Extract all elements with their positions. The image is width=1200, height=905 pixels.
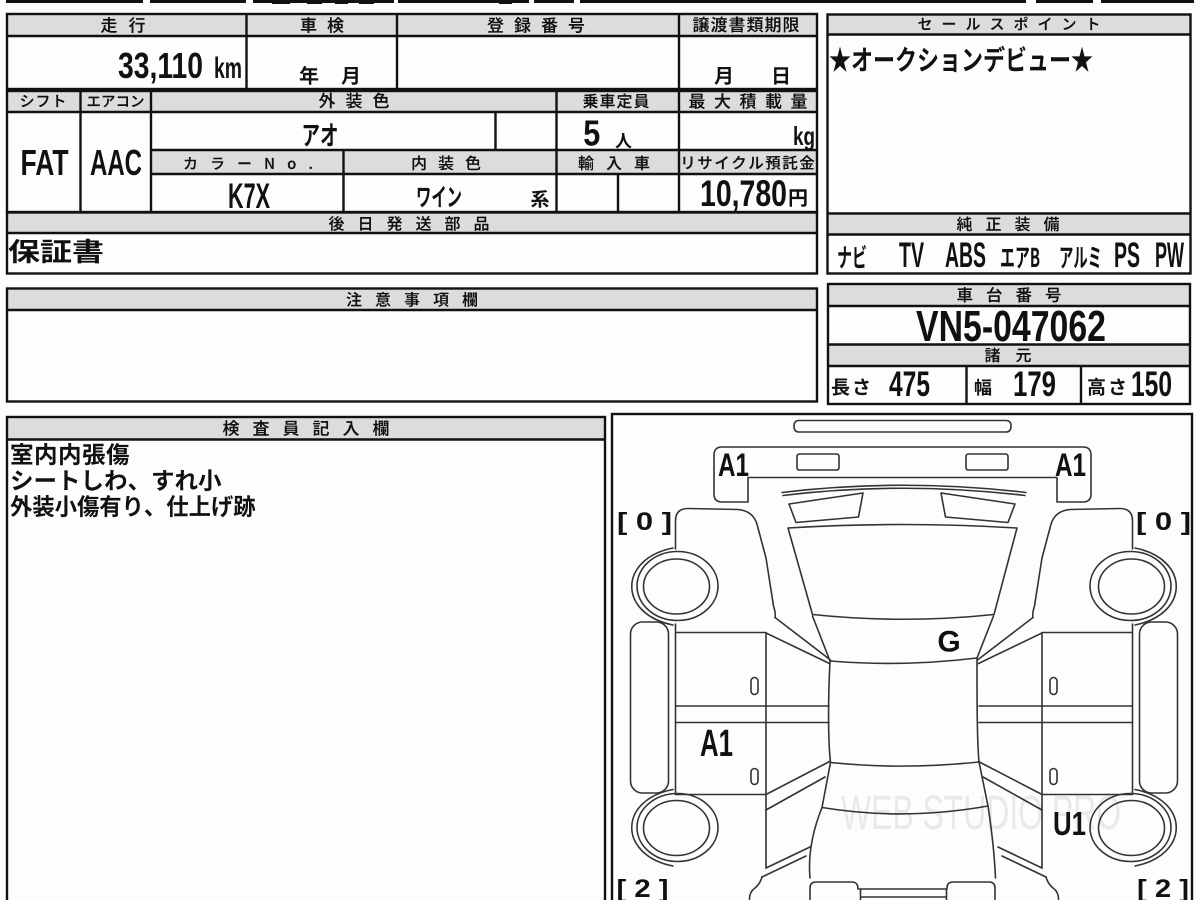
svg-text:kg: kg [793, 121, 815, 151]
svg-text:[ 2 ]: [ 2 ] [617, 875, 669, 900]
svg-text:km: km [214, 52, 242, 85]
svg-text:FAT: FAT [21, 142, 69, 183]
svg-text:150: 150 [1131, 365, 1172, 404]
svg-text:[ 0 ]: [ 0 ] [617, 508, 672, 536]
svg-text:K7X: K7X [228, 177, 270, 216]
svg-text:A1: A1 [700, 723, 733, 765]
svg-text:A1: A1 [718, 447, 749, 483]
svg-text:[ 0 ]: [ 0 ] [1136, 508, 1191, 536]
svg-text:G: G [937, 626, 960, 659]
svg-text:U1: U1 [1053, 805, 1086, 842]
svg-text:10,780: 10,780 [700, 173, 787, 214]
svg-text:33,110: 33,110 [118, 45, 203, 86]
svg-text:179: 179 [1013, 365, 1056, 404]
svg-text:A1: A1 [1055, 447, 1086, 483]
svg-text:TV: TV [899, 236, 924, 275]
svg-text:5: 5 [583, 113, 600, 154]
svg-text:VN5-047062: VN5-047062 [916, 302, 1106, 351]
svg-text:PW: PW [1155, 236, 1184, 275]
svg-text:PS: PS [1114, 236, 1140, 275]
svg-text:ABS: ABS [945, 236, 986, 275]
svg-text:475: 475 [889, 365, 930, 404]
svg-text:[ 2 ]: [ 2 ] [1137, 875, 1189, 900]
svg-text:AAC: AAC [90, 142, 142, 183]
